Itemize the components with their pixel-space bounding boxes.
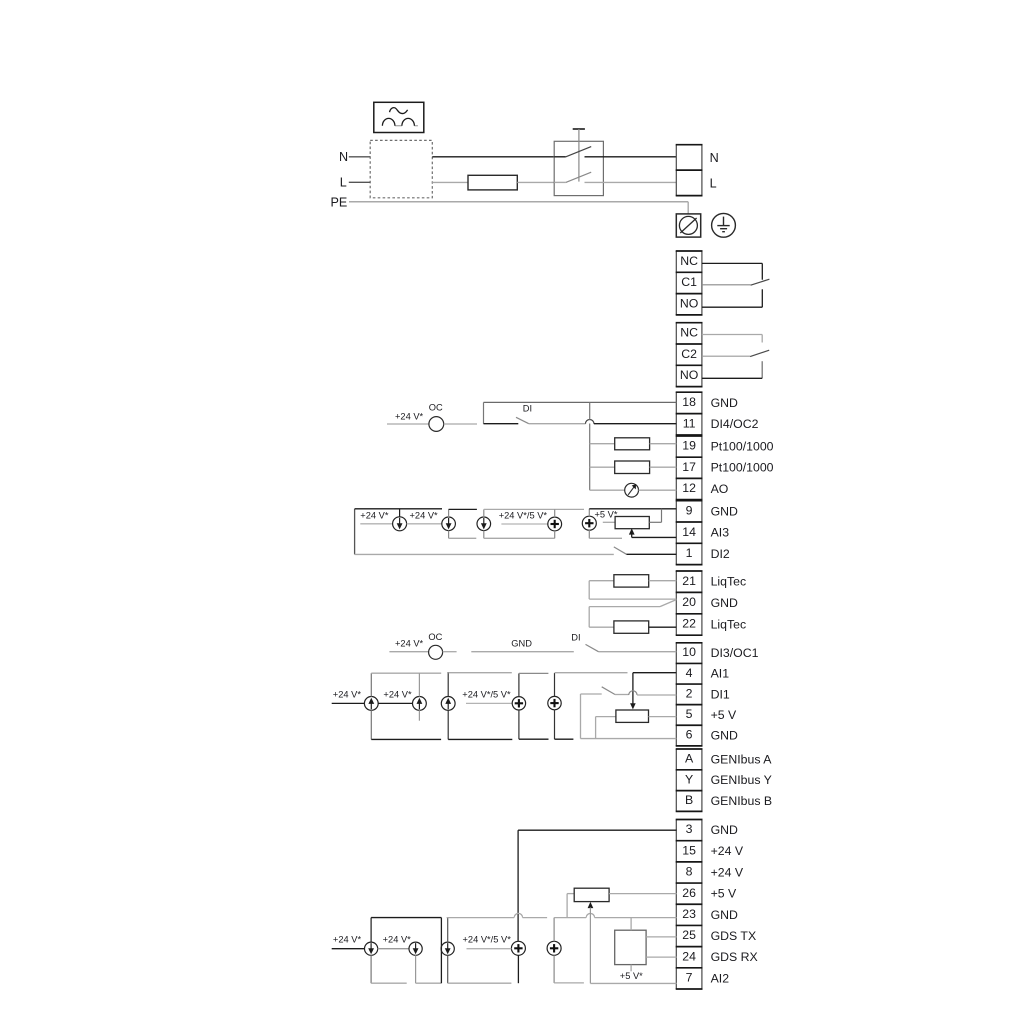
svg-text:OC: OC (429, 402, 443, 412)
svg-text:DI3/OC1: DI3/OC1 (711, 646, 759, 660)
svg-text:+24 V*/5 V*: +24 V*/5 V* (499, 510, 548, 520)
svg-text:GENIbus A: GENIbus A (711, 752, 773, 766)
svg-text:9: 9 (686, 503, 693, 517)
svg-text:GND: GND (711, 396, 738, 410)
svg-text:Pt100/1000: Pt100/1000 (711, 461, 774, 475)
svg-text:4: 4 (686, 666, 693, 680)
svg-text:GND: GND (711, 728, 738, 742)
svg-text:L: L (340, 175, 347, 189)
svg-text:N: N (339, 150, 348, 164)
svg-text:AO: AO (711, 482, 729, 496)
svg-text:GND: GND (511, 638, 532, 648)
svg-text:17: 17 (682, 460, 696, 474)
svg-text:AI2: AI2 (711, 971, 730, 985)
svg-text:19: 19 (682, 439, 696, 453)
svg-text:+24 V*/5 V*: +24 V*/5 V* (462, 690, 511, 700)
svg-text:18: 18 (682, 395, 696, 409)
svg-text:+24 V*: +24 V* (410, 511, 439, 521)
svg-text:L: L (710, 176, 717, 190)
svg-text:LiqTec: LiqTec (711, 617, 747, 631)
svg-text:Y: Y (685, 772, 693, 786)
svg-text:GDS RX: GDS RX (711, 950, 758, 964)
svg-text:NC: NC (680, 254, 698, 268)
svg-text:GND: GND (711, 908, 738, 922)
svg-text:+24 V*: +24 V* (333, 934, 362, 944)
svg-text:+5 V: +5 V (711, 887, 737, 901)
svg-text:PE: PE (331, 195, 348, 209)
svg-text:7: 7 (686, 971, 693, 985)
svg-text:14: 14 (682, 525, 696, 539)
svg-text:3: 3 (686, 822, 693, 836)
svg-text:+24 V*: +24 V* (395, 638, 424, 648)
svg-text:22: 22 (682, 617, 696, 631)
svg-text:10: 10 (682, 645, 696, 659)
svg-text:+24 V: +24 V (711, 844, 744, 858)
svg-text:DI2: DI2 (711, 547, 730, 561)
svg-text:26: 26 (682, 886, 696, 900)
svg-text:NO: NO (680, 296, 698, 310)
svg-text:GND: GND (711, 596, 738, 610)
svg-text:GENIbus B: GENIbus B (711, 794, 773, 808)
svg-text:25: 25 (682, 928, 696, 942)
svg-text:NC: NC (680, 325, 698, 339)
svg-text:AI3: AI3 (711, 526, 730, 540)
svg-text:24: 24 (682, 949, 696, 963)
svg-text:AI1: AI1 (711, 667, 730, 681)
svg-text:N: N (710, 151, 719, 165)
svg-text:GDS TX: GDS TX (711, 929, 757, 943)
svg-text:15: 15 (682, 843, 696, 857)
svg-text:DI: DI (523, 404, 532, 414)
svg-text:GND: GND (711, 504, 738, 518)
svg-text:C1: C1 (681, 275, 697, 289)
svg-text:+5 V*: +5 V* (595, 510, 618, 520)
svg-text:23: 23 (682, 907, 696, 921)
svg-text:+24 V*: +24 V* (333, 690, 362, 700)
svg-text:+24 V*: +24 V* (395, 411, 424, 421)
svg-text:B: B (685, 793, 693, 807)
svg-text:8: 8 (686, 865, 693, 879)
svg-text:GND: GND (711, 823, 738, 837)
svg-text:5: 5 (686, 707, 693, 721)
svg-text:DI1: DI1 (711, 687, 730, 701)
svg-text:NO: NO (680, 368, 698, 382)
svg-text:6: 6 (686, 728, 693, 742)
svg-text:+24 V*: +24 V* (383, 689, 412, 699)
svg-text:20: 20 (682, 595, 696, 609)
svg-text:+5 V*: +5 V* (620, 971, 643, 981)
svg-text:11: 11 (683, 416, 696, 430)
svg-text:+24 V*/5 V*: +24 V*/5 V* (463, 934, 512, 944)
svg-text:+24 V: +24 V (711, 865, 744, 879)
svg-text:DI4/OC2: DI4/OC2 (711, 417, 759, 431)
svg-text:+5 V: +5 V (711, 708, 737, 722)
svg-text:12: 12 (682, 481, 696, 495)
svg-text:+24 V*: +24 V* (360, 511, 389, 521)
svg-text:C2: C2 (681, 347, 697, 361)
svg-text:LiqTec: LiqTec (711, 575, 747, 589)
svg-text:21: 21 (682, 574, 696, 588)
svg-text:+24 V*: +24 V* (383, 934, 412, 944)
svg-text:OC: OC (428, 632, 442, 642)
svg-text:1: 1 (686, 546, 693, 560)
svg-text:A: A (685, 752, 694, 766)
svg-text:Pt100/1000: Pt100/1000 (711, 440, 774, 454)
svg-text:DI: DI (571, 633, 580, 643)
svg-text:2: 2 (686, 686, 693, 700)
svg-text:GENIbus Y: GENIbus Y (711, 773, 772, 787)
